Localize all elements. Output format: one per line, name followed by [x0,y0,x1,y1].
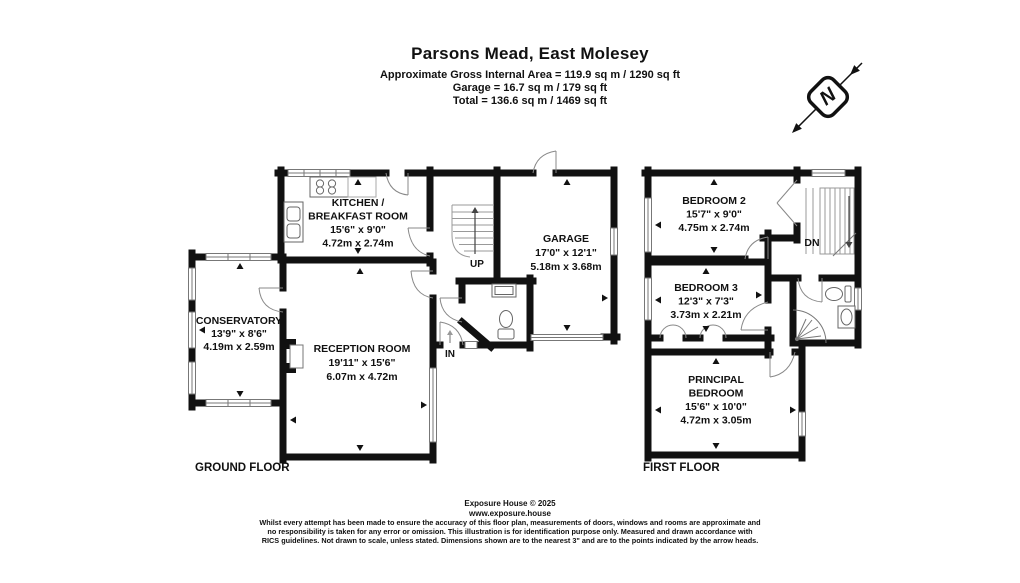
stove-icon [310,177,376,197]
wc-sink-icon [492,284,516,297]
principal-label-line1: PRINCIPAL [688,374,744,386]
bathroom-toilet-icon [826,286,852,302]
bedroom2-dims-imperial: 15'7" x 9'0" [686,209,742,221]
ground-floor-plan: KITCHEN / BREAKFAST ROOM 15'6" x 9'0" 4.… [189,151,618,474]
shower-icon [793,310,826,343]
garage-dims-metric: 5.18m x 3.68m [530,261,601,273]
garage-label: GARAGE [543,233,589,245]
company-credit: Exposure House © 2025 [0,499,1020,509]
principal-label-line2: BEDROOM [689,388,744,400]
first-floor-plan: BEDROOM 2 15'7" x 9'0" 4.75m x 2.74m BED… [643,170,862,475]
kitchen-dims-imperial: 15'6" x 9'0" [330,224,386,236]
bedroom2-label: BEDROOM 2 [682,195,746,207]
disclaimer-line3: RICS guidelines. Not drawn to scale, unl… [0,536,1020,545]
garage-door [531,335,603,341]
stairs-dn-label: DN [804,237,819,249]
bedroom2-dims-metric: 4.75m x 2.74m [678,222,749,234]
kitchen-dims-metric: 4.72m x 2.74m [322,238,393,250]
north-compass-icon: N [792,63,862,133]
disclaimer-line2: no responsibility is taken for any error… [0,527,1020,536]
bedroom3-dims-imperial: 12'3" x 7'3" [678,296,734,308]
disclaimer-line1: Whilst every attempt has been made to en… [0,518,1020,527]
ground-floor-title: GROUND FLOOR [195,462,290,474]
stairs-up-label: UP [470,259,484,270]
reception-dims-imperial: 19'11" x 15'6" [329,357,396,369]
bedroom3-dims-metric: 3.73m x 2.21m [670,309,741,321]
kitchen-label-line2: BREAKFAST ROOM [308,211,408,223]
conservatory-dims-imperial: 13'9" x 8'6" [211,328,267,340]
website-url: www.exposure.house [0,509,1020,519]
bedroom3-label: BEDROOM 3 [674,282,738,294]
first-floor-title: FIRST FLOOR [643,462,720,474]
plan-footer: Exposure House © 2025 www.exposure.house… [0,499,1020,545]
principal-dims-metric: 4.72m x 3.05m [680,415,751,427]
bathroom-sink-icon [838,306,855,328]
kitchen-label-line1: KITCHEN / [332,197,385,209]
floorplan-drawing: KITCHEN / BREAKFAST ROOM 15'6" x 9'0" 4.… [0,0,1020,583]
conservatory-label: CONSERVATORY [196,315,282,327]
floorplan-page: Parsons Mead, East Molesey Approximate G… [0,0,1020,583]
reception-dims-metric: 6.07m x 4.72m [326,371,397,383]
reception-label: RECEPTION ROOM [314,343,411,355]
first-floor-windows [645,170,862,437]
entry-in-label: IN [445,349,455,360]
kitchen-sink-icon [284,202,303,242]
entry-arrow-icon [447,330,453,343]
staircase-ground [452,205,494,257]
conservatory-dims-metric: 4.19m x 2.59m [203,341,274,353]
wc-toilet-icon [498,311,514,340]
principal-dims-imperial: 15'6" x 10'0" [685,401,747,413]
garage-dims-imperial: 17'0" x 12'1" [535,247,597,259]
